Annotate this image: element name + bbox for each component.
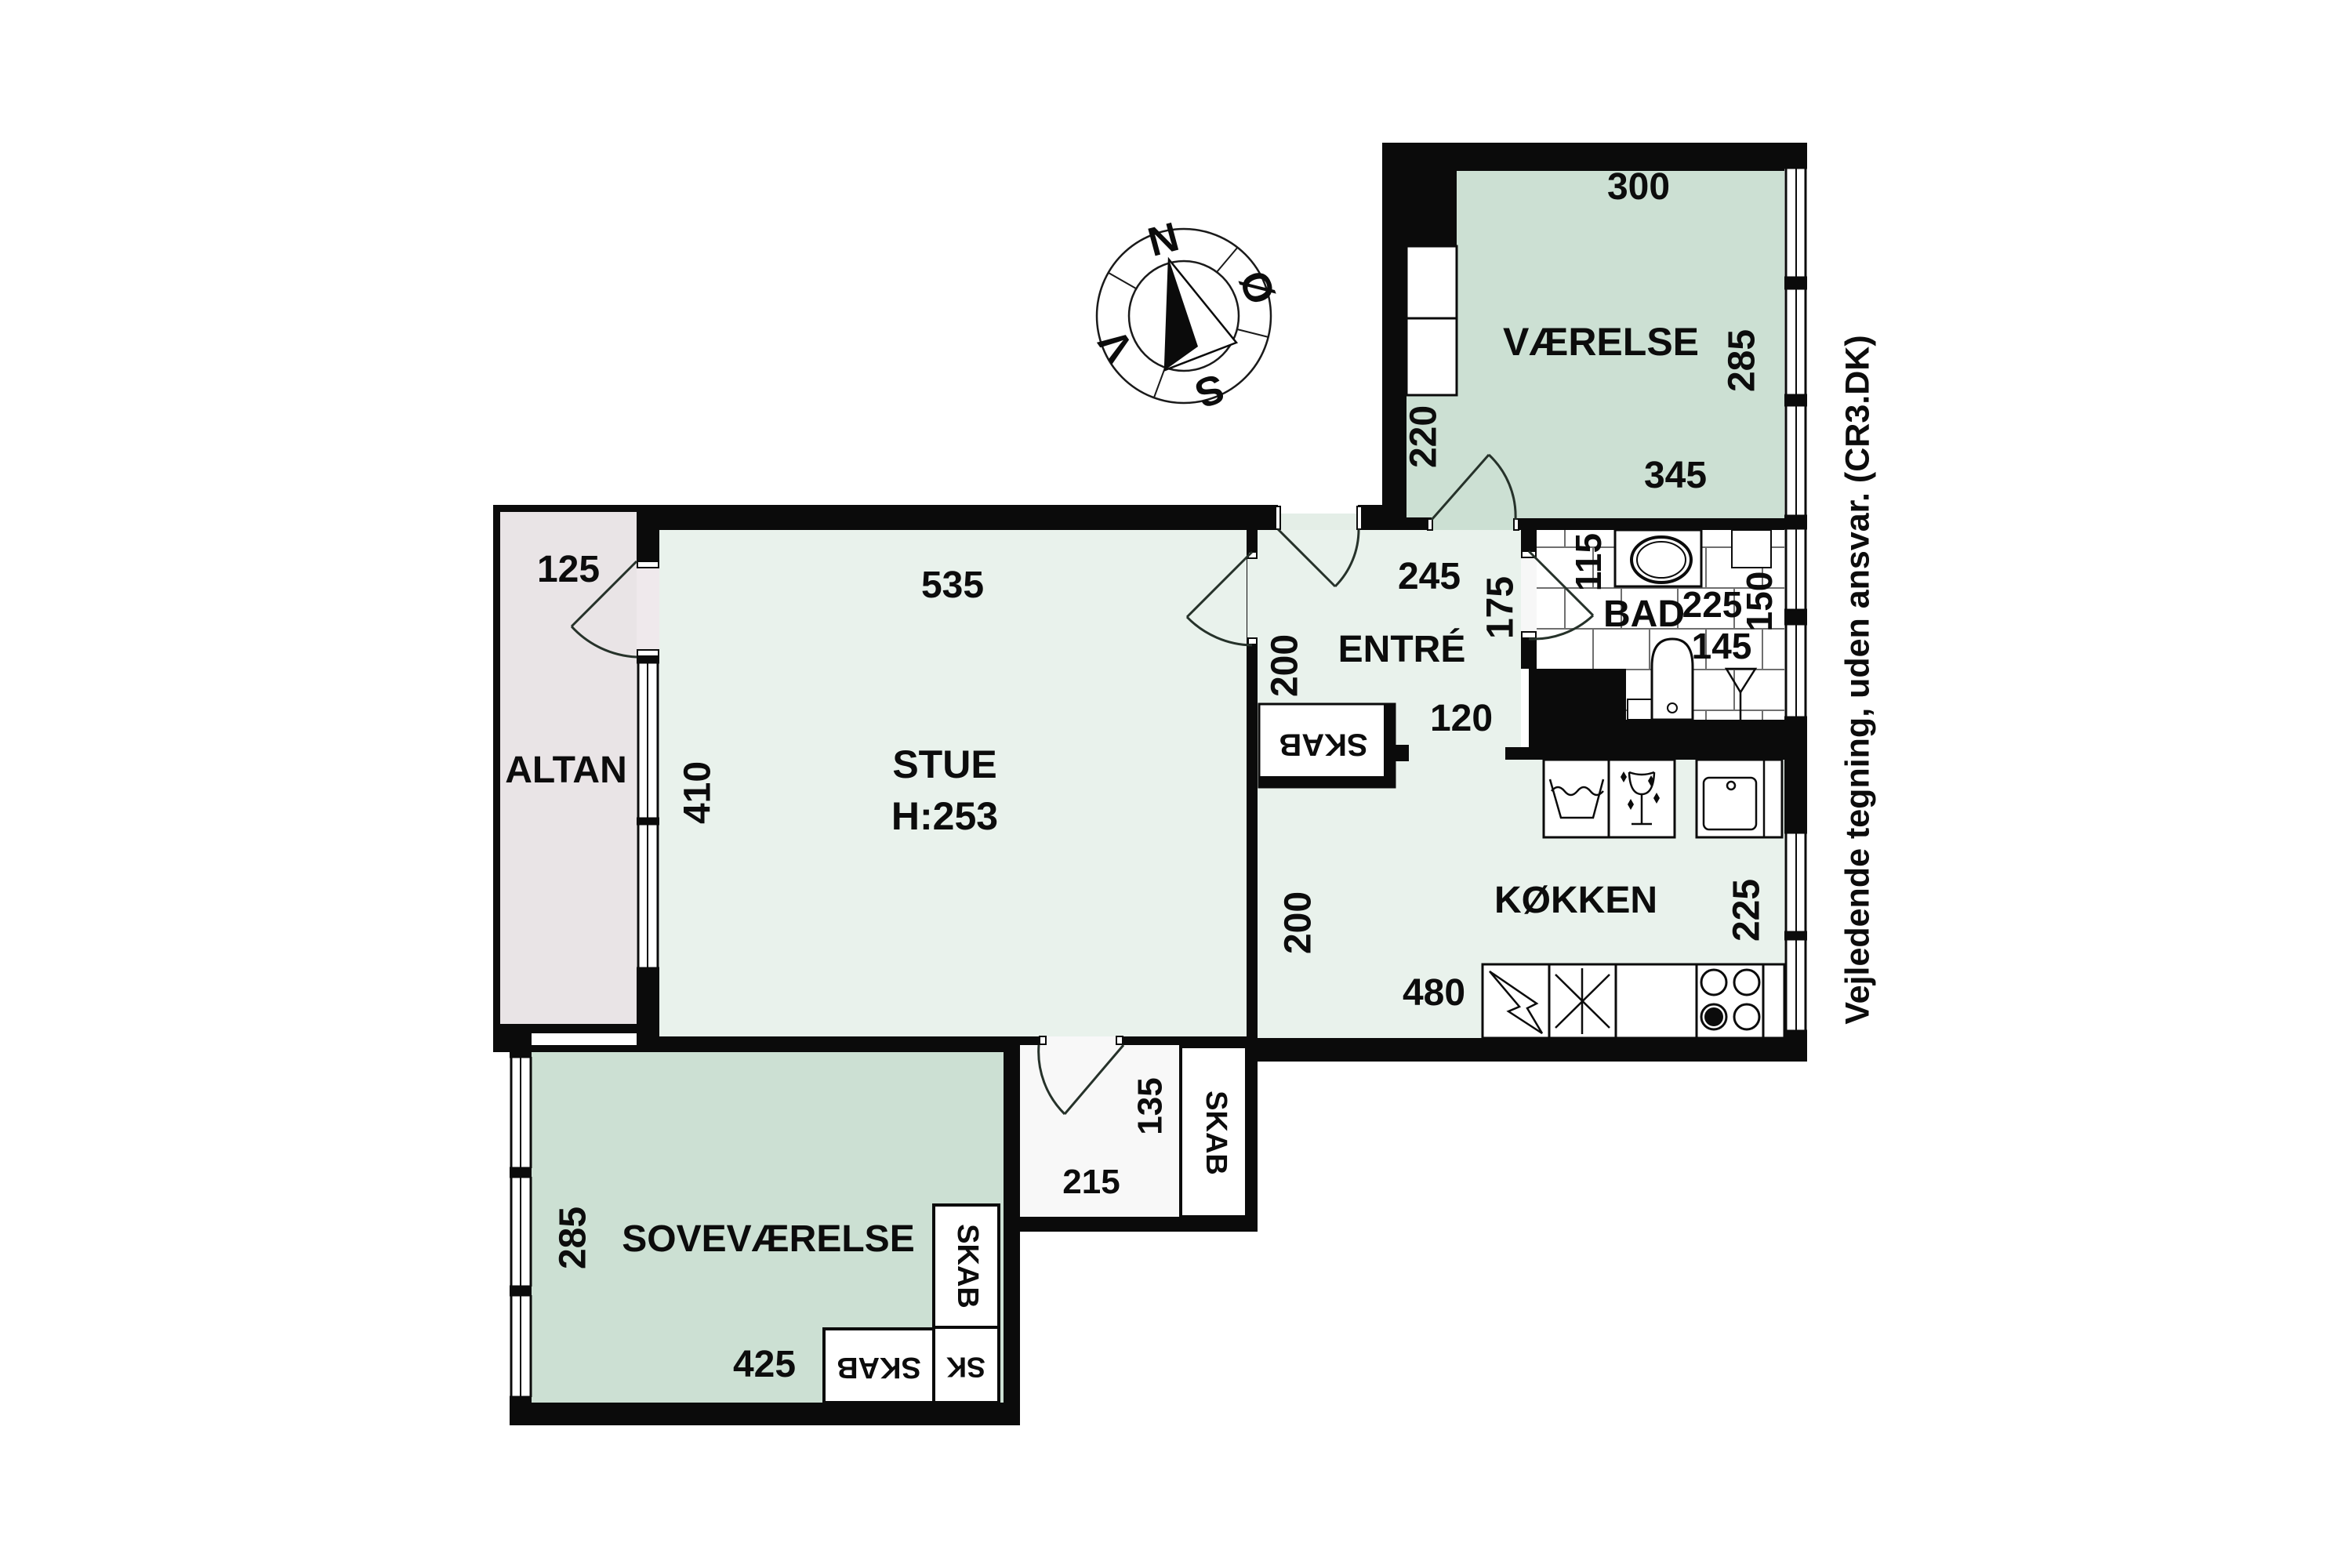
- svg-text:245: 245: [1398, 556, 1461, 597]
- svg-text:SKAB: SKAB: [1200, 1091, 1232, 1175]
- svg-text:225: 225: [1682, 584, 1743, 625]
- svg-text:115: 115: [1568, 533, 1609, 591]
- svg-text:H:253: H:253: [891, 794, 998, 838]
- svg-text:200: 200: [1278, 891, 1319, 954]
- svg-text:225: 225: [1726, 879, 1768, 942]
- svg-text:120: 120: [1430, 698, 1493, 739]
- svg-text:SKAB: SKAB: [1279, 727, 1367, 761]
- svg-text:ALTAN: ALTAN: [505, 750, 627, 791]
- svg-text:SKAB: SKAB: [951, 1224, 984, 1308]
- svg-text:135: 135: [1131, 1077, 1170, 1134]
- svg-text:150: 150: [1739, 572, 1780, 632]
- svg-text:215: 215: [1062, 1163, 1120, 1201]
- svg-text:220: 220: [1403, 405, 1445, 468]
- svg-text:Vejledende tegning, uden ansva: Vejledende tegning, uden ansvar. (CR3.DK…: [1838, 335, 1876, 1024]
- svg-text:345: 345: [1644, 455, 1707, 496]
- svg-text:125: 125: [537, 549, 600, 590]
- svg-text:SKAB: SKAB: [837, 1351, 921, 1384]
- svg-text:300: 300: [1607, 166, 1670, 208]
- svg-text:535: 535: [921, 564, 984, 606]
- svg-text:VÆRELSE: VÆRELSE: [1503, 320, 1699, 364]
- svg-text:KØKKEN: KØKKEN: [1494, 880, 1657, 921]
- svg-text:410: 410: [677, 761, 719, 824]
- svg-text:285: 285: [553, 1207, 594, 1269]
- svg-text:175: 175: [1480, 576, 1522, 639]
- svg-text:480: 480: [1403, 972, 1465, 1014]
- svg-text:200: 200: [1265, 634, 1306, 697]
- svg-text:ENTRÉ: ENTRÉ: [1338, 628, 1466, 670]
- svg-text:BAD: BAD: [1603, 593, 1685, 635]
- svg-text:SK: SK: [946, 1351, 985, 1383]
- svg-text:425: 425: [733, 1344, 796, 1385]
- svg-text:285: 285: [1722, 329, 1763, 392]
- svg-text:SOVEVÆRELSE: SOVEVÆRELSE: [622, 1218, 914, 1260]
- svg-text:STUE: STUE: [892, 742, 996, 786]
